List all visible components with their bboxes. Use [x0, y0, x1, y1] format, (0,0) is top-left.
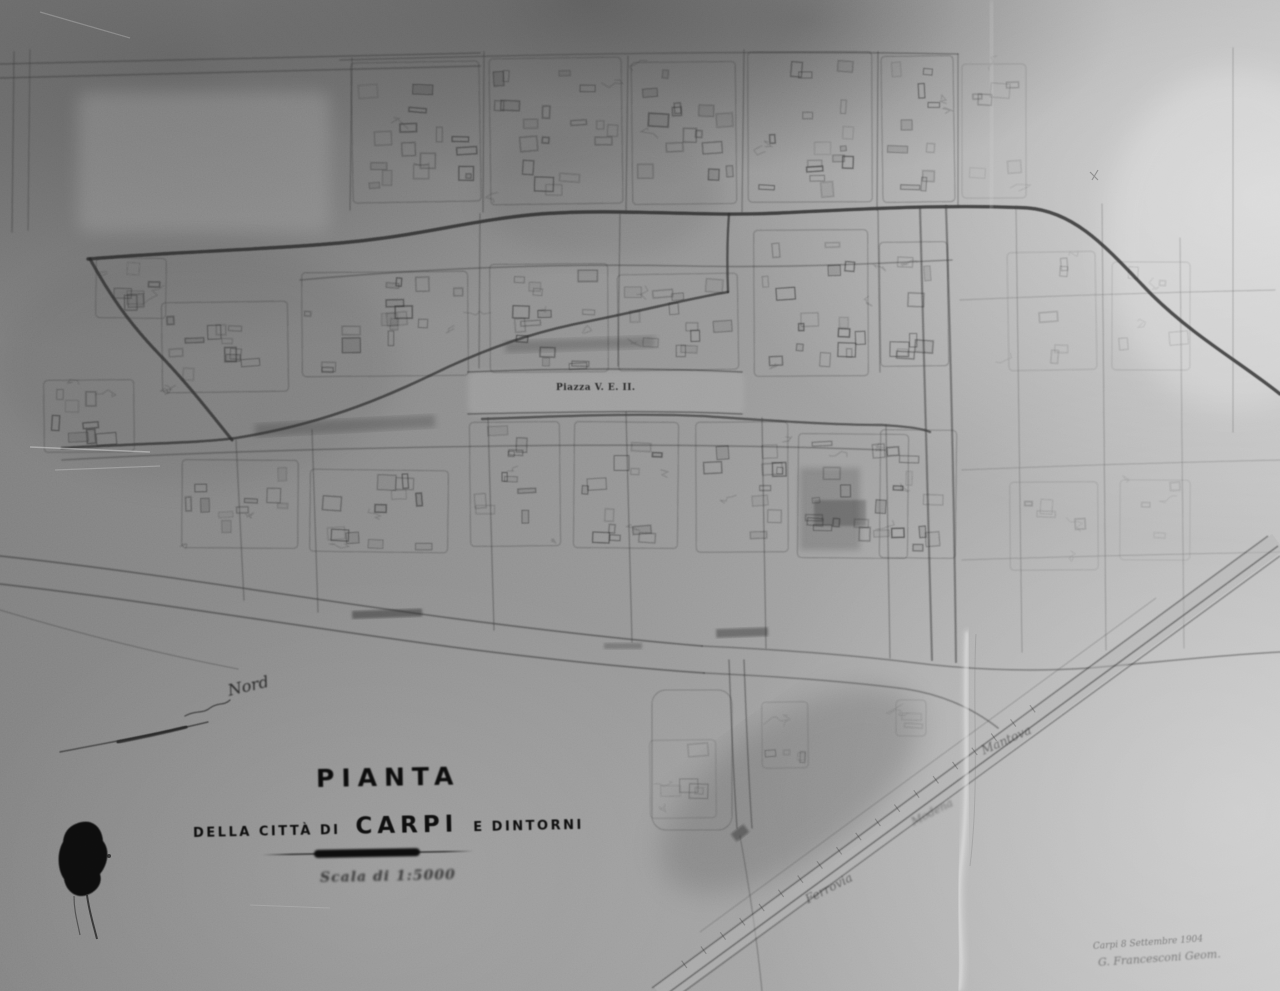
grain-layer: [0, 0, 1280, 991]
map-photograph: PIANTA DELLA CITTÀ DI CARPI E DINTORNI S…: [0, 0, 1280, 991]
title-rule-thick-segment: [314, 848, 420, 858]
map-linework-canvas: [0, 0, 1280, 991]
piazza-label: Piazza V. E. II.: [556, 383, 636, 393]
subtitle-suffix: E DINTORNI: [473, 818, 584, 835]
scale-note: Scala di 1:5000: [320, 867, 456, 886]
subtitle-prefix: DELLA CITTÀ DI: [193, 823, 341, 841]
map-title: PIANTA: [316, 761, 461, 793]
subtitle-city: CARPI: [355, 811, 458, 839]
